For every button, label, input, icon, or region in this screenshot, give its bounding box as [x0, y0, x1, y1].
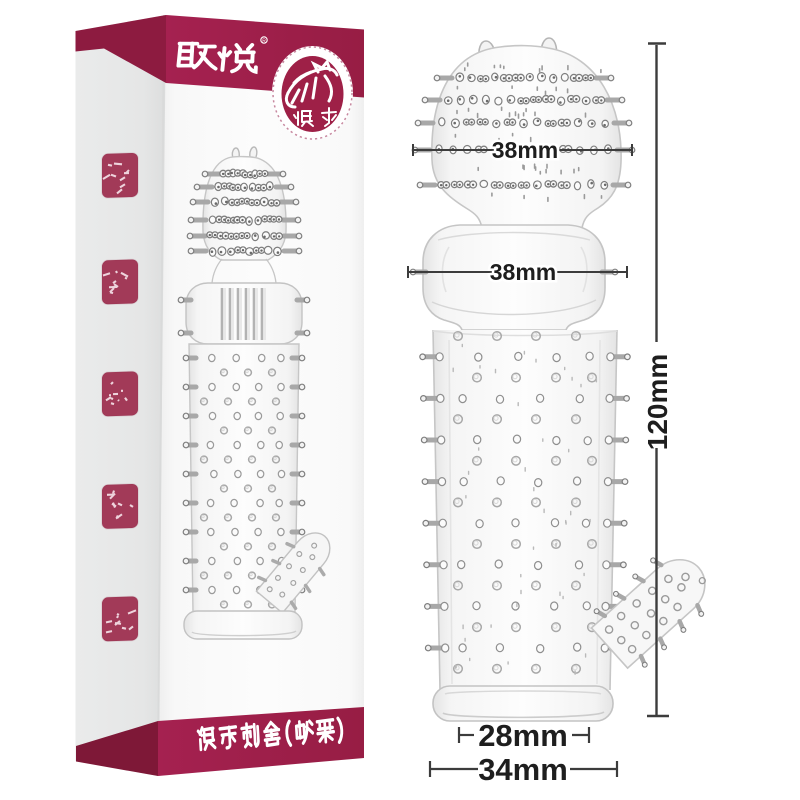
svg-text:38mm: 38mm [492, 137, 558, 163]
svg-text:38mm: 38mm [490, 259, 556, 285]
svg-text:R: R [262, 39, 266, 45]
svg-text:34mm: 34mm [478, 752, 568, 787]
svg-text:120mm: 120mm [642, 354, 673, 451]
svg-text:28mm: 28mm [478, 718, 568, 753]
